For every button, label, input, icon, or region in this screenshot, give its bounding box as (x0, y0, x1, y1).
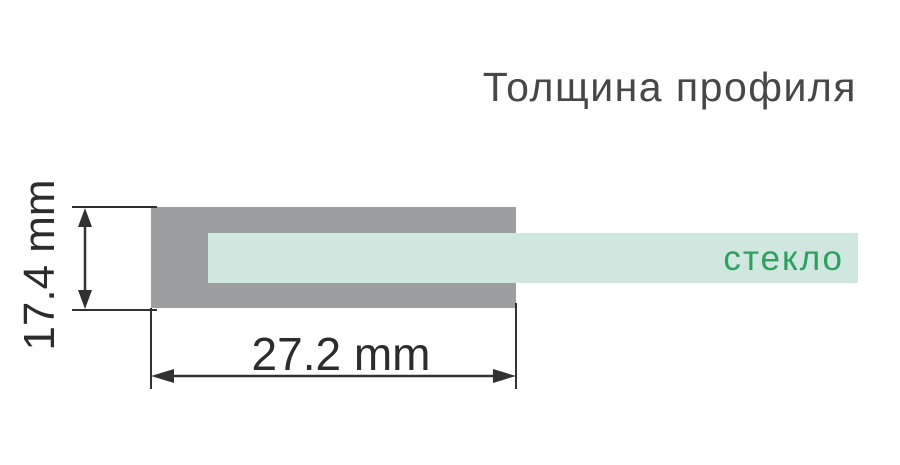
arrowhead-left (151, 369, 174, 383)
profile-thickness-diagram: Толщина профиля стекло 17.4 mm 27.2 mm (0, 0, 900, 465)
arrowhead-down (78, 290, 92, 309)
glass-panel: стекло (208, 233, 858, 283)
page-title: Толщина профиля (483, 64, 857, 111)
arrowhead-right (493, 369, 516, 383)
height-dimension-label: 17.4 mm (18, 179, 62, 350)
width-dimension-label: 27.2 mm (252, 331, 431, 377)
arrowhead-up (78, 208, 92, 227)
glass-label: стекло (723, 241, 858, 276)
